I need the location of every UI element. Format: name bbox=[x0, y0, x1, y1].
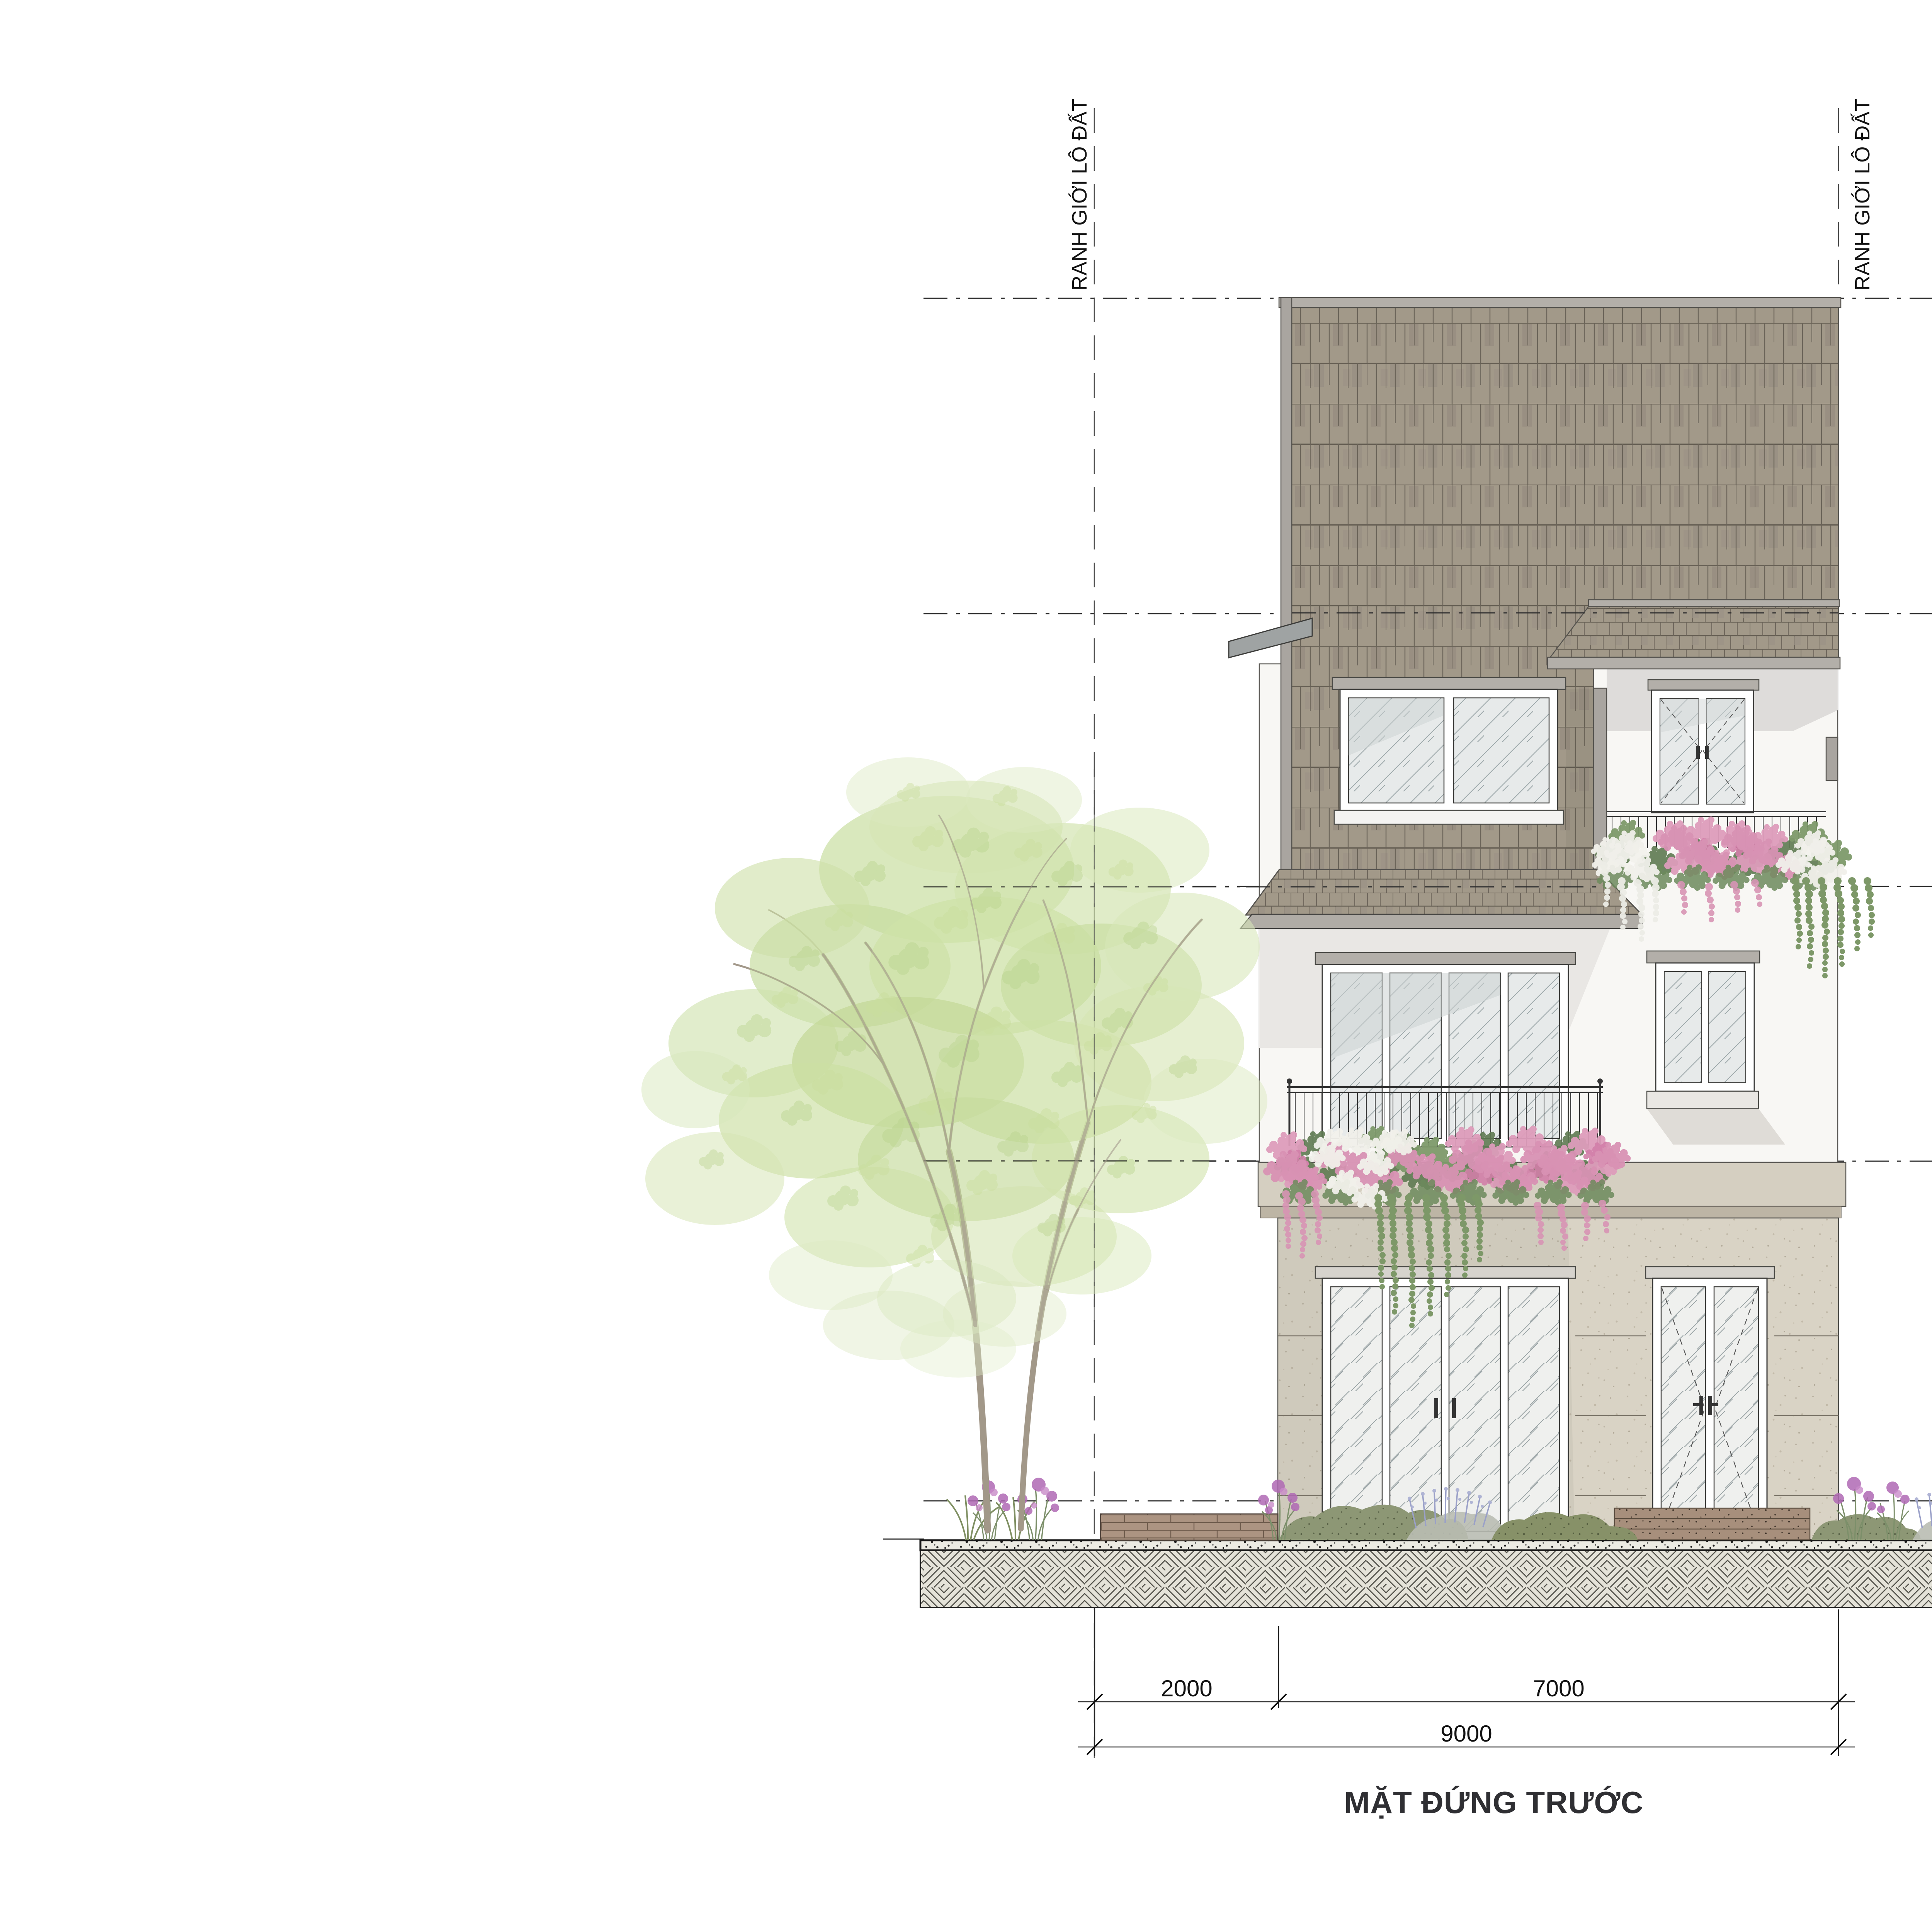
svg-text:2000: 2000 bbox=[1161, 1675, 1212, 1701]
svg-text:3300: 3300 bbox=[1928, 998, 1932, 1050]
svg-text:4100: 4100 bbox=[1928, 1305, 1932, 1356]
svg-text:9000: 9000 bbox=[1440, 1721, 1492, 1747]
svg-text:3300: 3300 bbox=[1928, 724, 1932, 776]
svg-text:RANH GIỚI LÔ ĐẤT: RANH GIỚI LÔ ĐẤT bbox=[1851, 99, 1874, 291]
svg-text:MẶT ĐỨNG TRƯỚC: MẶT ĐỨNG TRƯỚC bbox=[1344, 1785, 1644, 1820]
svg-text:RANH GIỚI LÔ ĐẤT: RANH GIỚI LÔ ĐẤT bbox=[1068, 99, 1091, 291]
svg-text:450: 450 bbox=[1928, 1501, 1932, 1539]
svg-text:3800: 3800 bbox=[1928, 430, 1932, 481]
svg-text:7000: 7000 bbox=[1533, 1675, 1584, 1701]
